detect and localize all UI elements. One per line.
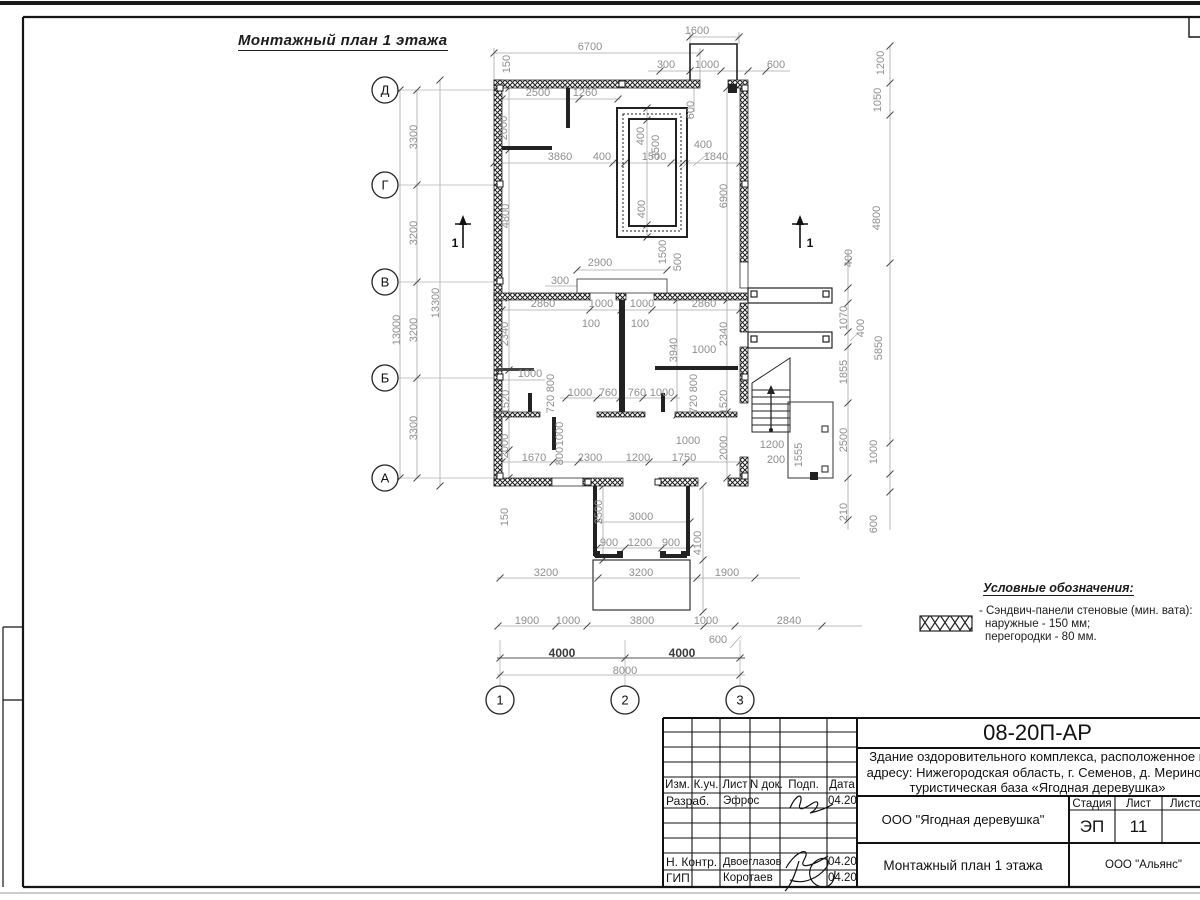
dim-label: 600: [868, 515, 880, 533]
dim-label: 1520: [718, 390, 730, 414]
opening-niche: [577, 279, 667, 293]
dim-label: 1500: [642, 151, 666, 163]
customer-org: ООО "Ягодная деревушка": [857, 796, 1069, 843]
dim-label: 2500: [838, 428, 850, 452]
dim-label: 3300: [408, 125, 420, 149]
dim-label: 800: [545, 374, 557, 392]
dim-label: 1900: [515, 615, 539, 627]
tb-header-ndok: N док.: [750, 778, 780, 793]
dim-label: 4000: [669, 646, 696, 660]
dim-label: 800: [554, 447, 566, 465]
tb-date: 04.20: [828, 855, 857, 870]
dim-label: 400: [694, 139, 712, 151]
project-description-line: адресу: Нижегородская область, г. Семено…: [857, 765, 1200, 781]
dim-label: 13000: [391, 315, 403, 346]
doc-number: 08-20П-АР: [857, 718, 1200, 748]
dim-label: 4000: [549, 646, 576, 660]
axis-label: Г: [381, 178, 388, 193]
dim-label: 1200: [628, 537, 652, 549]
dim-label: 210: [838, 503, 850, 521]
drawing-sheet: 11 1600670030010006001502500126060020004…: [0, 0, 1200, 900]
dimension-labels: 1600670030010006001502500126060020004003…: [391, 25, 887, 677]
axis-label: 1: [496, 693, 503, 708]
tb-name: Двоеглазов: [723, 855, 781, 870]
dim-label: 4100: [692, 531, 704, 555]
dim-label: 3000: [629, 511, 653, 523]
tb-role: Разраб.: [666, 794, 709, 809]
dim-label: 600: [767, 59, 785, 71]
dim-label: 400: [593, 151, 611, 163]
wall-right: [740, 88, 748, 262]
legend-swatch-sandwich-panel: [920, 616, 972, 631]
dim-label: 1200: [760, 439, 784, 451]
dim-label: 1670: [522, 452, 546, 464]
window-right: [740, 262, 748, 288]
dim-label: 2000: [499, 434, 511, 458]
dim-label: 4800: [871, 206, 883, 230]
tb-header-kuch: К.уч.: [692, 778, 720, 793]
dim-label: 150: [499, 508, 511, 526]
dim-label: 2340: [499, 322, 511, 346]
dim-label: 400: [855, 319, 867, 337]
dim-label: 800: [688, 374, 700, 392]
dim-label: 300: [551, 275, 569, 287]
dim-label: 6900: [718, 184, 730, 208]
dim-label: 1000: [695, 59, 719, 71]
section-cut-icon: [792, 224, 808, 248]
dim-label: 2300: [578, 452, 602, 464]
dim-label: 8000: [613, 665, 637, 677]
dim-label: 720: [545, 395, 557, 413]
stage-value: ЭП: [1069, 810, 1115, 843]
dim-label: 1200: [626, 452, 650, 464]
section-arrow-icon: [796, 215, 804, 225]
dim-label: 1000: [676, 435, 700, 447]
dim-label: 1000: [518, 368, 542, 380]
dim-label: 1840: [704, 151, 728, 163]
sheet-top-edge: [0, 1, 1200, 5]
partition-center: [619, 300, 625, 412]
dim-label: 3200: [629, 567, 653, 579]
section-number: 1: [452, 236, 459, 250]
tb-header-data: Дата: [827, 778, 857, 793]
dim-label: 1000: [868, 440, 880, 464]
axis-label: Б: [381, 371, 390, 386]
dim-label: 900: [662, 537, 680, 549]
dim-label: 1000: [568, 387, 592, 399]
dim-label: 1000: [556, 615, 580, 627]
dim-label: 2860: [531, 298, 555, 310]
axis-label: А: [381, 471, 390, 486]
dim-label: 1200: [875, 51, 887, 75]
window-bottom: [552, 478, 583, 486]
dim-label: 1260: [573, 87, 597, 99]
dim-label: 760: [599, 387, 617, 399]
dim-label: 1000: [589, 298, 613, 310]
dim-label: 100: [582, 318, 600, 330]
project-description-line: Здание оздоровительного комплекса, распо…: [857, 749, 1200, 765]
dim-label: 200: [767, 454, 785, 466]
dim-label: 400: [843, 249, 855, 267]
dim-label: 1600: [685, 25, 709, 37]
dim-label: 2000: [718, 436, 730, 460]
dim-label: 150: [501, 55, 513, 73]
dim-label: 3200: [534, 567, 558, 579]
dim-label: 1050: [872, 88, 884, 112]
dim-label: 1500: [657, 240, 669, 264]
project-description-line: туристическая база «Ягодная деревушка»: [857, 780, 1200, 796]
contractor-org: ООО "Альянс": [1069, 843, 1200, 887]
legend-item-line: наружные - 150 мм;: [985, 618, 1090, 630]
dim-label: 300: [657, 59, 675, 71]
dim-label: 900: [600, 537, 618, 549]
dim-label: 2000: [498, 116, 510, 140]
axis-label: В: [381, 275, 390, 290]
legend-title: Условные обозначения:: [983, 581, 1134, 596]
dim-label: 1000: [694, 615, 718, 627]
dim-label: 13300: [430, 288, 442, 319]
dim-label: 1000: [650, 387, 674, 399]
dim-label: 5850: [873, 336, 885, 360]
dim-label: 400: [635, 127, 647, 145]
axis-label: 2: [621, 693, 628, 708]
tb-name: Коротаев: [723, 871, 773, 886]
tb-name: Эфрос: [723, 794, 759, 809]
dim-label: 3800: [630, 615, 654, 627]
tb-header-izm: Изм.: [663, 778, 692, 793]
pool: [617, 108, 687, 237]
legend-item-line: перегородки - 80 мм.: [985, 631, 1097, 643]
axis-label: Д: [381, 83, 390, 98]
drawing-label: Монтажный план 1 этажа: [857, 843, 1069, 887]
dim-label: 100: [631, 318, 649, 330]
ramps: [748, 288, 832, 348]
dim-label: 1750: [672, 452, 696, 464]
axis-label: 3: [736, 693, 743, 708]
dim-label: 1000: [554, 422, 566, 446]
tb-role: ГИП: [666, 871, 690, 886]
dim-label: 760: [628, 387, 646, 399]
dim-label: 1855: [838, 360, 850, 384]
dim-label: 2900: [588, 257, 612, 269]
section-number: 1: [807, 236, 814, 250]
sheet-number: 11: [1115, 810, 1162, 843]
dim-label: 3300: [408, 416, 420, 440]
dim-label: 2860: [692, 298, 716, 310]
tb-role: Н. Контр.: [666, 855, 717, 870]
section-arrow-icon: [459, 215, 467, 225]
dim-label: 6700: [578, 41, 602, 53]
dim-label: 1900: [715, 567, 739, 579]
dim-label: 1520: [500, 390, 512, 414]
dim-label: 2500: [593, 500, 605, 524]
dim-label: 4800: [500, 204, 512, 228]
dim-label: 1000: [692, 344, 716, 356]
dim-label: 1000: [630, 298, 654, 310]
dim-label: 3200: [408, 221, 420, 245]
tb-header-listov: Листов: [1162, 797, 1200, 812]
tb-date: 04.20: [828, 794, 857, 809]
dim-label: 3940: [668, 338, 680, 362]
tb-date: 04.20: [828, 871, 857, 886]
tb-header-list: Лист: [720, 778, 750, 793]
dim-label: 3860: [548, 151, 572, 163]
dim-label: 600: [709, 634, 727, 646]
dim-label: 400: [636, 200, 648, 218]
dim-label: 2340: [718, 322, 730, 346]
dim-label: 1070: [838, 306, 850, 330]
dim-label: 2500: [526, 87, 550, 99]
dim-label: 500: [672, 253, 684, 271]
dim-label: 720: [688, 395, 700, 413]
dim-label: 1555: [793, 443, 805, 467]
dim-label: 2840: [777, 615, 801, 627]
dim-label: 600: [685, 101, 697, 119]
dim-label: 3200: [408, 318, 420, 342]
tb-header-podp: Подп.: [780, 778, 827, 793]
plan-title: Монтажный план 1 этажа: [238, 32, 448, 51]
legend-item-line: - Сэндвич-панели стеновые (мин. вата):: [979, 605, 1193, 617]
project-description: Здание оздоровительного комплекса, распо…: [857, 749, 1200, 796]
